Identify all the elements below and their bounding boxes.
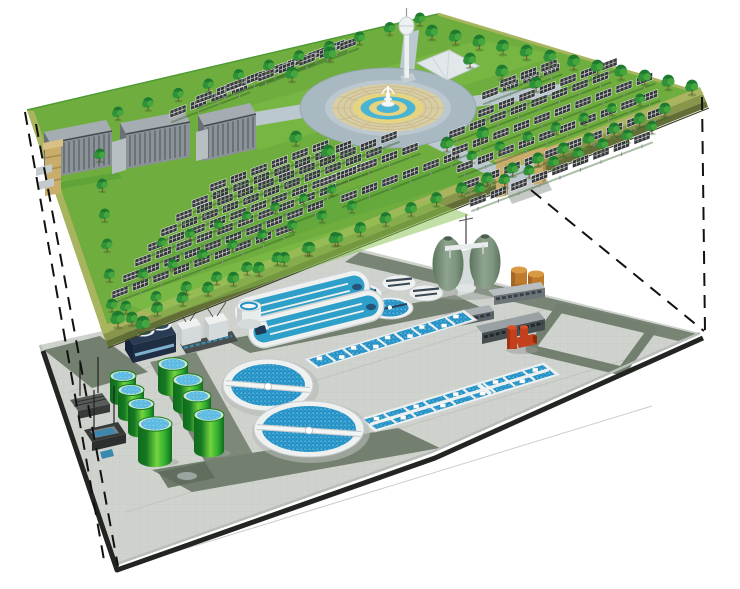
white-silo xyxy=(237,301,261,329)
large-circular-clarifier xyxy=(252,401,370,463)
illustration-canvas xyxy=(0,0,740,589)
exploded-facility-illustration xyxy=(0,0,740,589)
